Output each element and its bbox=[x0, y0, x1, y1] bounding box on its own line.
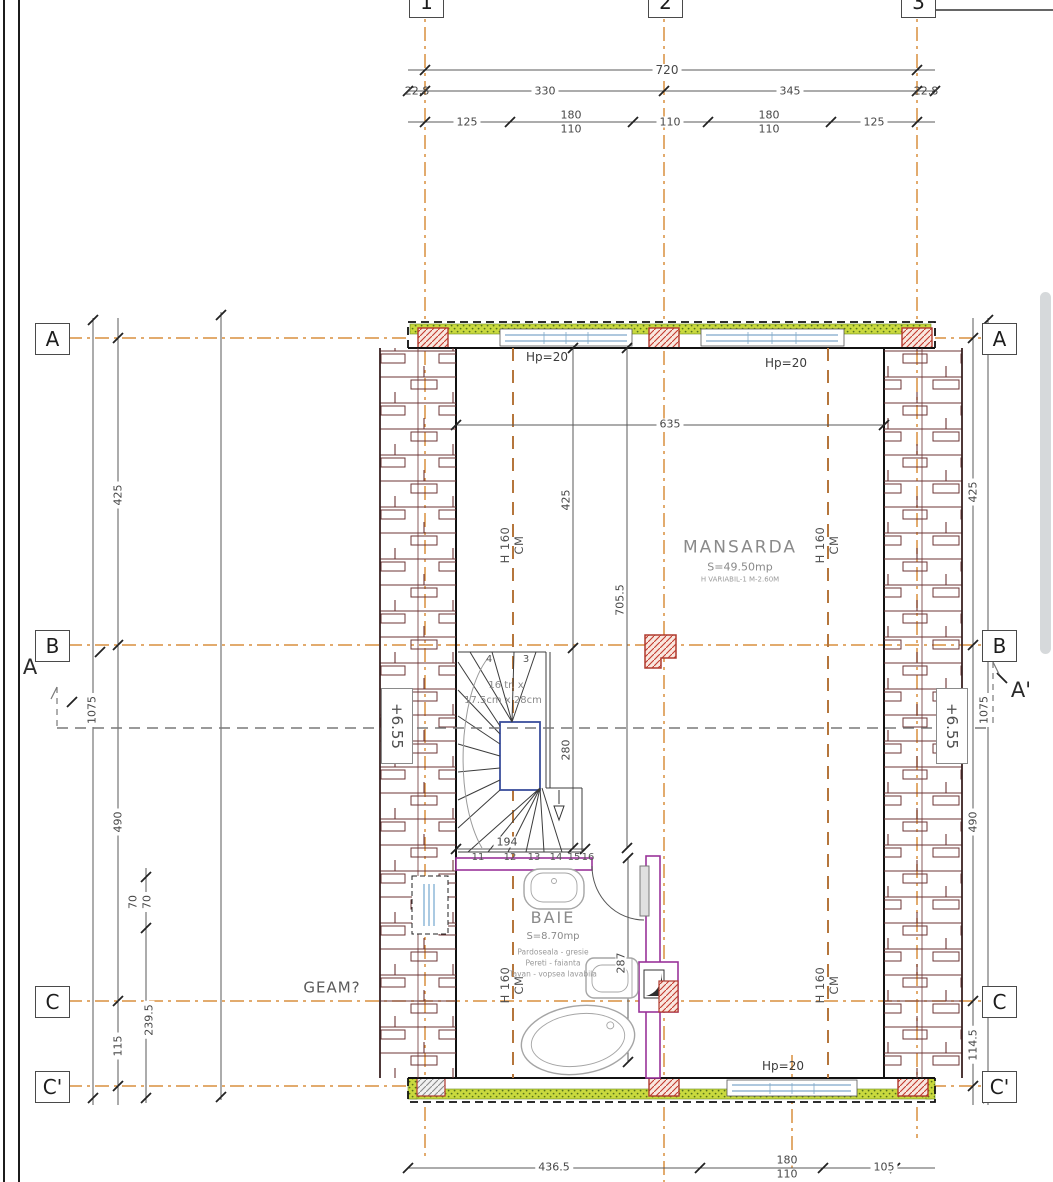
room-name-mansarda: MANSARDA bbox=[683, 540, 797, 557]
dim-label: 194 bbox=[494, 837, 521, 848]
window-parapet-label: Hp=20 bbox=[526, 351, 568, 363]
dim-label: 105 bbox=[871, 1162, 898, 1173]
dim-label: 239.5 bbox=[144, 1001, 155, 1039]
dim-label: 1075 bbox=[979, 693, 990, 727]
window-top-left bbox=[500, 329, 632, 346]
grid-bubble-c-left: C bbox=[35, 986, 70, 1018]
shaft-pier bbox=[659, 981, 678, 1012]
grid-bubble-2: 2 bbox=[648, 0, 683, 18]
roof-skylight bbox=[412, 876, 448, 934]
dim-label: 436.5 bbox=[535, 1162, 573, 1173]
dim-label: 330 bbox=[532, 86, 559, 97]
dimension-lines bbox=[93, 70, 988, 1168]
stair-note-size: 17.5cm x 28cm bbox=[464, 696, 542, 706]
dim-label: 125 bbox=[454, 117, 481, 128]
room-area-mansarda: S=49.50mp bbox=[707, 562, 772, 573]
grid-bubble-a-right: A bbox=[982, 323, 1017, 355]
height-limit-label: H 160CM bbox=[814, 967, 842, 1004]
room-finish-ceiling: Tavan - vopsea lavabila bbox=[509, 970, 597, 978]
section-marker-a: A bbox=[23, 655, 37, 679]
door-swing-arc bbox=[592, 866, 644, 920]
dim-label: 180 bbox=[774, 1155, 801, 1166]
level-marker-left: +6.55 bbox=[381, 688, 413, 764]
grid-bubble-1: 1 bbox=[409, 0, 444, 18]
stair-landing bbox=[500, 722, 540, 790]
geam-annotation: GEAM? bbox=[303, 981, 360, 996]
tread-number: 4 bbox=[486, 655, 492, 665]
room-area-baie: S=8.70mp bbox=[526, 932, 579, 942]
window-parapet-label: Hp=20 bbox=[765, 357, 807, 369]
dim-label: 720 bbox=[653, 64, 682, 76]
dimension-ticks bbox=[67, 65, 1007, 1173]
dim-label: 490 bbox=[113, 809, 124, 836]
tread-number: 11 bbox=[472, 853, 485, 863]
grid-bubble-b-right: B bbox=[982, 630, 1017, 662]
dim-label: 490 bbox=[968, 809, 979, 836]
window-parapet-label: Hp=20 bbox=[762, 1060, 804, 1072]
tread-number: 13 bbox=[528, 853, 541, 863]
tread-number: 12 bbox=[504, 853, 517, 863]
grid-bubble-c-right: C bbox=[982, 986, 1017, 1018]
tread-number: 15 bbox=[568, 853, 581, 863]
dim-label: 635 bbox=[657, 419, 684, 430]
height-limit-label: H 160CM bbox=[499, 527, 527, 564]
grid-axes bbox=[68, 0, 982, 1182]
stair-note-count: 16 tr. x bbox=[488, 681, 523, 691]
column bbox=[645, 635, 676, 668]
grid-bubble-3: 3 bbox=[901, 0, 936, 18]
room-name-baie: BAIE bbox=[531, 910, 576, 926]
scrollbar-thumb[interactable] bbox=[1040, 292, 1051, 654]
door-leaf bbox=[640, 866, 649, 916]
dim-label: 180 bbox=[756, 110, 783, 121]
dim-label: 425 bbox=[113, 482, 124, 509]
floor-plan-canvas: 1 2 3 A B C C' A B C C' A A' +6.55 +6.55… bbox=[0, 0, 1053, 1182]
dim-label: 287 bbox=[616, 950, 627, 977]
dim-label: 22.8 bbox=[914, 86, 939, 97]
dim-label: 110 bbox=[657, 117, 684, 128]
dim-label: 125 bbox=[861, 117, 888, 128]
grid-bubble-a-left: A bbox=[35, 323, 70, 355]
grid-bubble-cprime-right: C' bbox=[982, 1071, 1017, 1103]
dim-label: 425 bbox=[561, 487, 572, 514]
dim-label: 114.5 bbox=[968, 1026, 979, 1064]
dim-label: 705.5 bbox=[615, 581, 626, 619]
section-marker-a-prime: A' bbox=[1011, 678, 1031, 702]
sink bbox=[524, 869, 584, 909]
dim-label: 110 bbox=[558, 124, 585, 135]
tread-number: 16 bbox=[582, 853, 595, 863]
grid-bubble-b-left: B bbox=[35, 630, 70, 662]
height-limit-label: H 160CM bbox=[814, 527, 842, 564]
dim-label: 180 bbox=[558, 110, 585, 121]
dim-label: 115 bbox=[113, 1033, 124, 1060]
dim-label: 70 bbox=[128, 892, 139, 912]
window-bottom bbox=[727, 1080, 857, 1096]
dim-label: 425 bbox=[968, 479, 979, 506]
tread-number: 3 bbox=[523, 655, 529, 665]
dim-label: 22.8 bbox=[405, 86, 430, 97]
dim-label: 345 bbox=[777, 86, 804, 97]
stair-direction-arrow bbox=[554, 806, 564, 820]
room-finish-walls: Pereti - faianta bbox=[525, 959, 580, 967]
floor-plan-drawing bbox=[0, 0, 1053, 1182]
dim-label: 110 bbox=[756, 124, 783, 135]
dim-label: 110 bbox=[774, 1169, 801, 1180]
room-finish-floor: Pardoseala - gresie bbox=[517, 948, 588, 956]
window-top-right bbox=[701, 329, 844, 346]
dim-label: 280 bbox=[561, 737, 572, 764]
dim-label: 70 bbox=[142, 892, 153, 912]
room-note-mansarda: H VARIABIL-1 M-2.60M bbox=[701, 577, 779, 584]
bathtub bbox=[517, 998, 639, 1081]
dim-label: 1075 bbox=[87, 693, 98, 727]
tread-number: 14 bbox=[550, 853, 563, 863]
level-marker-right: +6.55 bbox=[936, 688, 968, 764]
grid-bubble-cprime-left: C' bbox=[35, 1071, 70, 1103]
